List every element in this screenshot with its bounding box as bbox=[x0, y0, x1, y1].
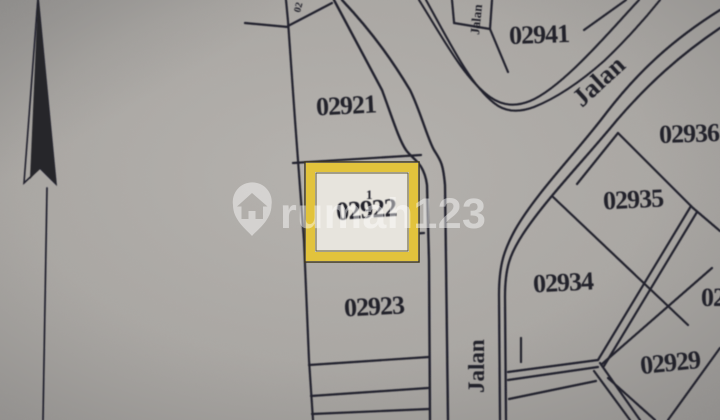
svg-text:Jalan: Jalan bbox=[464, 339, 489, 393]
svg-text:02936: 02936 bbox=[659, 118, 720, 149]
svg-text:02941: 02941 bbox=[509, 19, 570, 50]
svg-text:02934: 02934 bbox=[532, 266, 594, 298]
svg-text:02923: 02923 bbox=[343, 290, 405, 322]
svg-text:02935: 02935 bbox=[602, 183, 664, 215]
svg-text:02921: 02921 bbox=[315, 89, 376, 121]
svg-text:029: 029 bbox=[701, 283, 720, 312]
svg-text:rumah123: rumah123 bbox=[280, 190, 486, 238]
